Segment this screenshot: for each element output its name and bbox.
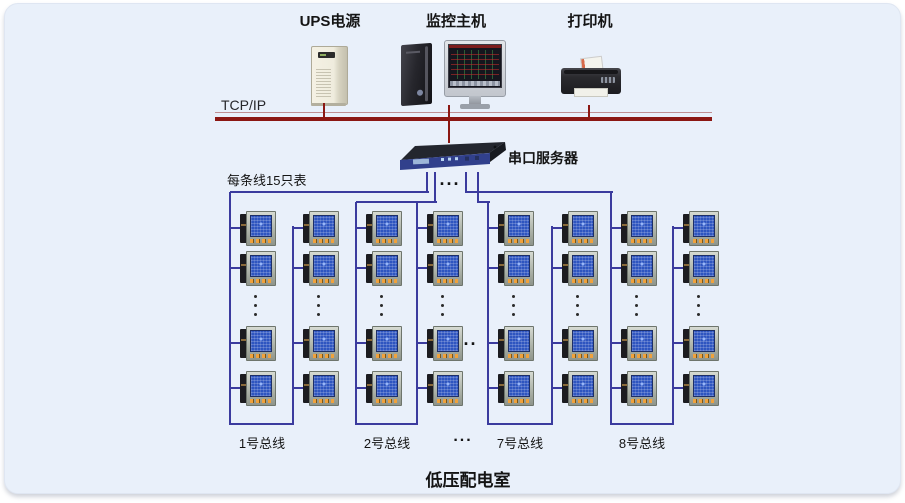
meter-lcd-screen [313, 375, 335, 397]
power-meter-icon [498, 371, 532, 405]
bus-line-right [672, 226, 674, 425]
meter-stub-line [612, 267, 621, 269]
meter-lcd-screen [250, 375, 272, 397]
bus-line-bottom [355, 423, 418, 425]
meter-stub-line [418, 227, 427, 229]
meter-lcd-screen [313, 255, 335, 277]
meter-buttons [376, 354, 397, 358]
power-meter-icon [621, 211, 655, 245]
meter-face [246, 371, 276, 406]
meter-face [504, 211, 534, 246]
meters-per-line-note: 每条线15只表 [227, 170, 306, 189]
power-meter-icon [427, 251, 461, 285]
power-meter-icon [427, 326, 461, 360]
meter-buttons [572, 279, 593, 283]
meter-face [627, 211, 657, 246]
server-feed-line [477, 172, 479, 203]
meter-column-ellipsis [697, 295, 700, 322]
bus-line-right [292, 226, 294, 425]
power-meter-icon [562, 211, 596, 245]
meter-lcd-screen [572, 375, 594, 397]
meter-face [433, 211, 463, 246]
meter-lcd-screen [631, 255, 653, 277]
meter-stub-line [357, 267, 366, 269]
power-meter-icon [498, 326, 532, 360]
bus-line-bottom [229, 423, 294, 425]
meter-stub-line [674, 267, 683, 269]
meter-face [504, 251, 534, 286]
power-meter-icon [427, 371, 461, 405]
power-meter-icon [366, 326, 400, 360]
monitor-host-label: 监控主机 [391, 10, 521, 31]
ups-display [318, 52, 335, 58]
meter-stub-line [418, 267, 427, 269]
meter-face [689, 211, 719, 246]
power-meter-icon [562, 371, 596, 405]
meter-face [568, 211, 598, 246]
meter-buttons [437, 354, 458, 358]
meter-face [372, 211, 402, 246]
meter-face [309, 326, 339, 361]
bus-line-bottom [610, 423, 674, 425]
meter-lcd-screen [376, 215, 398, 237]
meter-column-ellipsis [576, 295, 579, 322]
meter-face [309, 211, 339, 246]
meter-buttons [572, 239, 593, 243]
ups-label: UPS电源 [265, 10, 395, 31]
meter-stub-line [294, 342, 303, 344]
server-feed-line [466, 191, 613, 193]
server-feed-line [465, 172, 467, 193]
meter-lcd-screen [376, 330, 398, 352]
meter-stub-line [231, 227, 240, 229]
meter-stub-line [418, 342, 427, 344]
meter-buttons [508, 399, 529, 403]
meter-buttons [693, 279, 714, 283]
meter-lcd-screen [508, 375, 530, 397]
bus-line-bottom [487, 423, 553, 425]
meter-face [568, 371, 598, 406]
meter-column-ellipsis [380, 295, 383, 322]
meter-lcd-screen [437, 215, 459, 237]
meter-stub-line [294, 267, 303, 269]
bus-line-right [551, 226, 553, 425]
printer-label: 打印机 [525, 10, 655, 31]
meter-stub-line [357, 342, 366, 344]
meter-buttons [313, 354, 334, 358]
server-feed-line [426, 172, 428, 193]
power-meter-icon [303, 326, 337, 360]
meter-face [372, 326, 402, 361]
meter-buttons [631, 354, 652, 358]
meter-stub-line [418, 387, 427, 389]
power-meter-icon [240, 251, 274, 285]
meter-lcd-screen [572, 255, 594, 277]
meter-lcd-screen [631, 215, 653, 237]
meter-face [568, 251, 598, 286]
power-meter-icon [683, 326, 717, 360]
meter-buttons [631, 399, 652, 403]
meter-buttons [631, 239, 652, 243]
printer-icon [561, 60, 621, 100]
meter-lcd-screen [508, 255, 530, 277]
meter-face [504, 371, 534, 406]
power-meter-icon [303, 251, 337, 285]
bus-label: 2号总线 [345, 433, 429, 452]
meter-stub-line [674, 227, 683, 229]
bus-label: 1号总线 [220, 433, 304, 452]
meter-face [309, 251, 339, 286]
serial-server-label: 串口服务器 [508, 148, 578, 168]
tcpip-drop-line [323, 103, 325, 118]
meter-buttons [313, 239, 334, 243]
meter-face [372, 251, 402, 286]
printer-output-paper [574, 88, 608, 97]
meter-face [246, 251, 276, 286]
meter-stub-line [612, 227, 621, 229]
ups-vents [316, 67, 331, 97]
power-meter-icon [498, 211, 532, 245]
bus-line-left [487, 202, 489, 425]
meter-stub-line [553, 227, 562, 229]
meter-buttons [437, 399, 458, 403]
meter-column-ellipsis [254, 295, 257, 322]
meter-buttons [631, 279, 652, 283]
ups-base [311, 103, 346, 106]
meter-buttons [376, 279, 397, 283]
tcpip-label: TCP/IP [221, 97, 266, 113]
meter-lcd-screen [572, 215, 594, 237]
meter-lcd-screen [250, 255, 272, 277]
meter-buttons [313, 399, 334, 403]
meter-stub-line [357, 387, 366, 389]
meter-face [568, 326, 598, 361]
meter-stub-line [294, 387, 303, 389]
meter-buttons [508, 239, 529, 243]
server-feed-line [356, 201, 437, 203]
meter-lcd-screen [376, 375, 398, 397]
meter-lcd-screen [693, 330, 715, 352]
meter-face [627, 326, 657, 361]
power-meter-icon [498, 251, 532, 285]
meter-column-ellipsis [317, 295, 320, 322]
meter-stub-line [231, 342, 240, 344]
meter-stub-line [553, 342, 562, 344]
server-feed-line [434, 172, 436, 203]
meter-buttons [250, 239, 271, 243]
pc-tower-icon [401, 43, 432, 106]
meter-stub-line [489, 227, 498, 229]
bus-line-left [355, 202, 357, 425]
meter-face [433, 326, 463, 361]
power-meter-icon [621, 326, 655, 360]
meter-stub-line [489, 342, 498, 344]
meter-lcd-screen [437, 255, 459, 277]
meter-lcd-screen [631, 330, 653, 352]
room-label: 低压配电室 [378, 466, 558, 491]
meter-stub-line [553, 267, 562, 269]
meter-stub-line [231, 387, 240, 389]
meter-stub-line [231, 267, 240, 269]
meter-lcd-screen [250, 215, 272, 237]
meter-lcd-screen [437, 330, 459, 352]
meter-buttons [572, 399, 593, 403]
monitor-icon [444, 40, 506, 97]
power-meter-icon [683, 211, 717, 245]
meter-lcd-screen [376, 255, 398, 277]
meter-stub-line [294, 227, 303, 229]
meter-buttons [693, 399, 714, 403]
power-meter-icon [303, 211, 337, 245]
meter-face [504, 326, 534, 361]
meter-lcd-screen [631, 375, 653, 397]
meter-column-ellipsis [512, 295, 515, 322]
meter-buttons [250, 399, 271, 403]
power-meter-icon [303, 371, 337, 405]
meter-face [627, 251, 657, 286]
ups-icon [311, 46, 348, 105]
meter-face [689, 326, 719, 361]
power-meter-icon [366, 211, 400, 245]
power-meter-icon [240, 211, 274, 245]
server-ports-ellipsis: ... [434, 174, 466, 184]
meter-buttons [508, 354, 529, 358]
tcpip-bus-highlight [215, 112, 712, 113]
power-meter-icon [366, 251, 400, 285]
meter-column-ellipsis [441, 295, 444, 322]
meter-buttons [693, 354, 714, 358]
meter-lcd-screen [313, 215, 335, 237]
power-meter-icon [683, 251, 717, 285]
server-feed-line [230, 191, 429, 193]
meter-face [689, 371, 719, 406]
meter-face [309, 371, 339, 406]
power-meter-icon [621, 371, 655, 405]
meter-stub-line [553, 387, 562, 389]
bus-labels-ellipsis: ... [446, 432, 480, 442]
meter-stub-line [674, 387, 683, 389]
power-meter-icon [366, 371, 400, 405]
power-meter-icon [683, 371, 717, 405]
meter-buttons [313, 279, 334, 283]
meter-stub-line [357, 227, 366, 229]
meter-face [433, 371, 463, 406]
meter-lcd-screen [693, 215, 715, 237]
meter-face [433, 251, 463, 286]
meter-lcd-screen [508, 330, 530, 352]
tcpip-drop-line [588, 105, 590, 118]
meter-buttons [250, 354, 271, 358]
meter-buttons [693, 239, 714, 243]
meter-lcd-screen [313, 330, 335, 352]
meter-stub-line [489, 387, 498, 389]
power-meter-icon [562, 326, 596, 360]
meter-buttons [437, 239, 458, 243]
bus-line-right [416, 202, 418, 425]
diagram-canvas: UPS电源 监控主机 打印机 TCP/IP [0, 0, 905, 503]
power-meter-icon [240, 326, 274, 360]
power-meter-icon [621, 251, 655, 285]
meter-face [246, 326, 276, 361]
tcpip-drop-line [448, 105, 450, 118]
bus-label: 8号总线 [600, 433, 684, 452]
meter-lcd-screen [572, 330, 594, 352]
meter-buttons [572, 354, 593, 358]
meter-column-ellipsis [635, 295, 638, 322]
meter-lcd-screen [693, 255, 715, 277]
meter-buttons [250, 279, 271, 283]
meter-buttons [508, 279, 529, 283]
tcpip-bus-line [215, 117, 712, 121]
scada-screen [448, 44, 502, 88]
meter-stub-line [489, 267, 498, 269]
meter-lcd-screen [437, 375, 459, 397]
meter-buttons [376, 399, 397, 403]
power-meter-icon [240, 371, 274, 405]
tcpip-drop-line [448, 121, 450, 143]
bus-label: 7号总线 [478, 433, 562, 452]
meter-stub-line [612, 342, 621, 344]
meter-face [372, 371, 402, 406]
meter-face [246, 211, 276, 246]
meter-stub-line [674, 342, 683, 344]
meter-face [689, 251, 719, 286]
meter-face [627, 371, 657, 406]
power-meter-icon [562, 251, 596, 285]
meter-stub-line [612, 387, 621, 389]
meter-buttons [376, 239, 397, 243]
meter-lcd-screen [508, 215, 530, 237]
meter-lcd-screen [693, 375, 715, 397]
meter-lcd-screen [250, 330, 272, 352]
power-meter-icon [427, 211, 461, 245]
meter-buttons [437, 279, 458, 283]
